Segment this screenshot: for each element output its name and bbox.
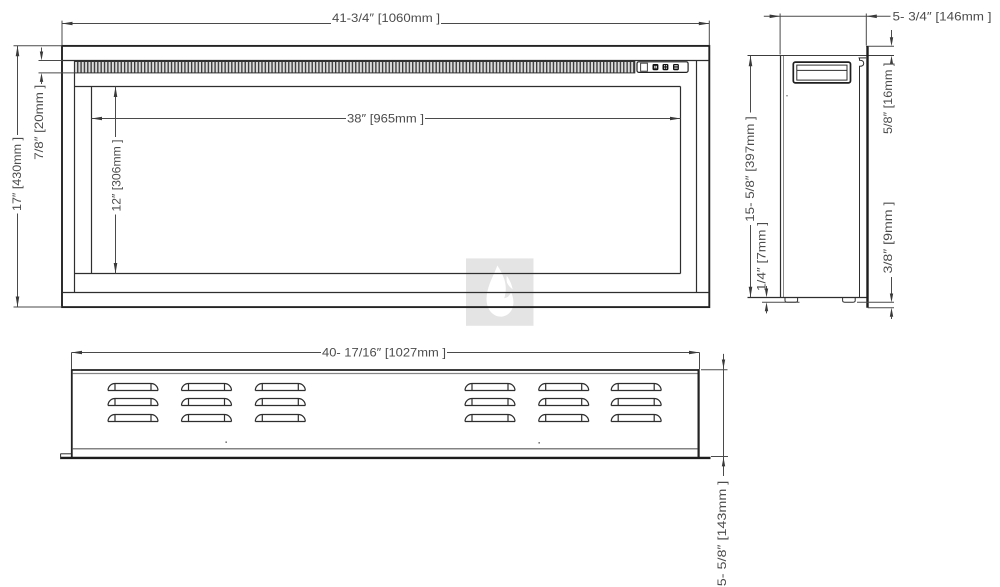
svg-text:41-3/4″ [1060mm ]: 41-3/4″ [1060mm ]: [332, 11, 440, 25]
svg-text:12″ [306mm ]: 12″ [306mm ]: [109, 140, 123, 212]
svg-text:40- 17/16″ [1027mm ]: 40- 17/16″ [1027mm ]: [322, 346, 446, 360]
svg-text:17″ [430mm ]: 17″ [430mm ]: [10, 137, 24, 211]
svg-text:15- 5/8″ [397mm ]: 15- 5/8″ [397mm ]: [743, 116, 757, 222]
svg-text:5/8″ [16mm ]: 5/8″ [16mm ]: [881, 63, 895, 135]
svg-text:1/4″ [7mm ]: 1/4″ [7mm ]: [755, 222, 769, 291]
svg-text:38″ [965mm ]: 38″ [965mm ]: [347, 111, 424, 125]
svg-text:3/8″ [9mm ]: 3/8″ [9mm ]: [881, 202, 895, 274]
svg-text:7/8″ [20mm ]: 7/8″ [20mm ]: [32, 85, 46, 160]
svg-text:5- 5/8″ [143mm ]: 5- 5/8″ [143mm ]: [715, 481, 729, 587]
svg-text:5- 3/4″ [146mm ]: 5- 3/4″ [146mm ]: [893, 10, 992, 24]
